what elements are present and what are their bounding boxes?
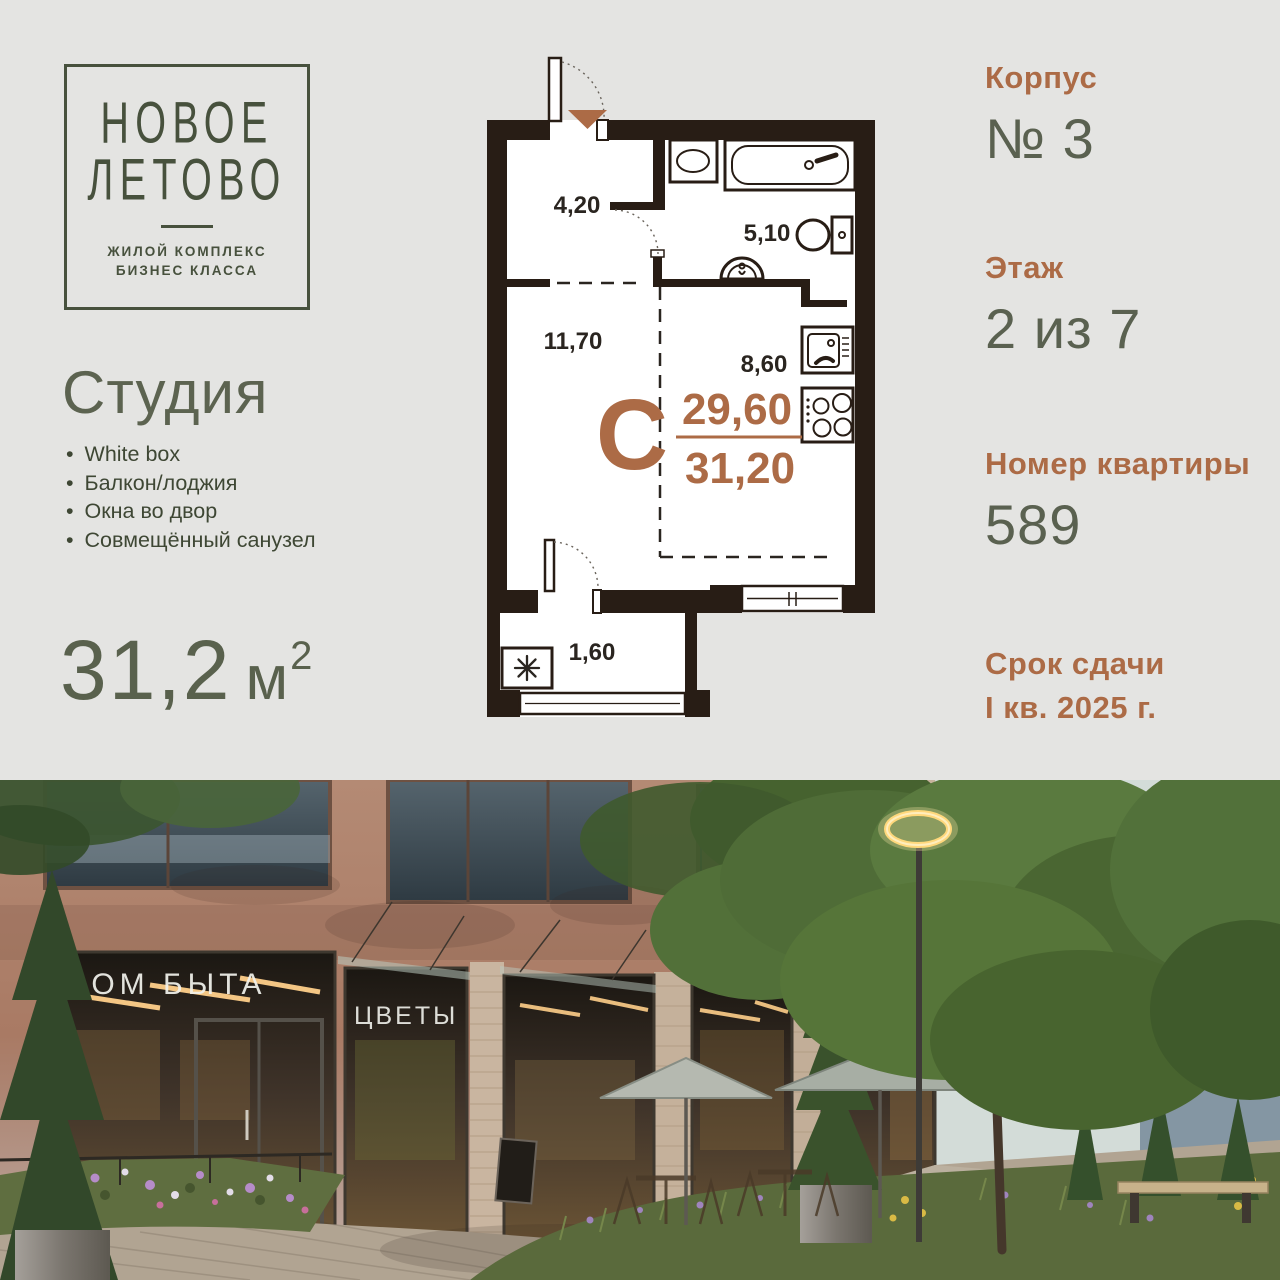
logo-subtitle-line2: БИЗНЕС КЛАССА bbox=[67, 261, 307, 280]
detail-value: I кв. 2025 г. bbox=[985, 690, 1265, 726]
balcony-door-leaf bbox=[545, 540, 554, 591]
window-main bbox=[742, 586, 843, 611]
storefront-sign-cvety: ЦВЕТЫ bbox=[354, 1002, 458, 1030]
total-area-sup: 2 bbox=[290, 634, 314, 678]
plan-type-letter: С bbox=[596, 379, 668, 491]
total-area: 31,2м2 bbox=[60, 622, 314, 719]
detail-block-srok: Срок сдачи I кв. 2025 г. bbox=[985, 646, 1265, 726]
balcony-door-jamb bbox=[593, 590, 601, 613]
total-area-unit: м bbox=[246, 644, 291, 713]
logo-title: НОВОЕ ЛЕТОВО bbox=[67, 95, 307, 209]
feature-item: Балкон/лоджия bbox=[66, 469, 316, 498]
storefront-sign-dom-byta: ДОМ БЫТА bbox=[66, 968, 267, 1001]
left-planter bbox=[15, 1230, 110, 1280]
logo-subtitle: ЖИЛОЙ КОМПЛЕКС БИЗНЕС КЛАССА bbox=[67, 242, 307, 280]
detail-block-nomer: Номер квартиры 589 bbox=[985, 446, 1265, 557]
menu-chalkboard bbox=[495, 1139, 536, 1204]
logo-subtitle-line1: ЖИЛОЙ КОМПЛЕКС bbox=[67, 242, 307, 261]
ac-unit-icon bbox=[502, 648, 552, 688]
entry-door-leaf bbox=[549, 58, 561, 121]
detail-block-etazh: Этаж 2 из 7 bbox=[985, 250, 1265, 361]
detail-label: Срок сдачи bbox=[985, 646, 1265, 682]
bathtub-icon bbox=[725, 140, 855, 190]
total-area-value: 31,2 bbox=[60, 623, 232, 717]
detail-label: Этаж bbox=[985, 250, 1265, 286]
kitchen-sink-icon bbox=[802, 327, 853, 373]
room-label-bathroom: 5,10 bbox=[744, 220, 791, 247]
logo-title-line2: ЛЕТОВО bbox=[79, 143, 295, 218]
plan-area-lower: 31,20 bbox=[685, 444, 795, 493]
logo: НОВОЕ ЛЕТОВО ЖИЛОЙ КОМПЛЕКС БИЗНЕС КЛАСС… bbox=[64, 64, 310, 310]
apartment-flyer: НОВОЕ ЛЕТОВО ЖИЛОЙ КОМПЛЕКС БИЗНЕС КЛАСС… bbox=[0, 0, 1280, 1280]
room-label-kitchen: 8,60 bbox=[741, 351, 788, 378]
building-photo: ДОМ БЫТА ЦВЕТЫ bbox=[0, 780, 1280, 1280]
detail-value: 589 bbox=[985, 492, 1265, 557]
detail-label: Номер квартиры bbox=[985, 446, 1265, 482]
feature-item: White box bbox=[66, 440, 316, 469]
feature-item: Окна во двор bbox=[66, 497, 316, 526]
logo-divider bbox=[161, 225, 213, 228]
window-balcony bbox=[520, 693, 685, 714]
plan-area-upper: 29,60 bbox=[682, 385, 792, 434]
apartment-type-title: Студия bbox=[62, 358, 269, 427]
entry-door-jamb bbox=[597, 120, 608, 140]
feature-item: Совмещённый санузел bbox=[66, 526, 316, 555]
detail-value: 2 из 7 bbox=[985, 296, 1265, 361]
stove-icon bbox=[802, 388, 853, 442]
detail-label: Корпус bbox=[985, 60, 1265, 96]
detail-value: № 3 bbox=[985, 106, 1265, 171]
room-label-living: 11,70 bbox=[544, 328, 603, 355]
room-label-balcony: 1,60 bbox=[569, 639, 616, 666]
room-label-hall: 4,20 bbox=[554, 192, 601, 219]
bathroom-sink-icon bbox=[670, 140, 717, 182]
feature-list: White box Балкон/лоджия Окна во двор Сов… bbox=[66, 440, 316, 554]
floor-plan: 4,20 5,10 11,70 8,60 1,60 С 29,60 31,20 bbox=[480, 50, 880, 730]
detail-block-korpus: Корпус № 3 bbox=[985, 60, 1265, 171]
